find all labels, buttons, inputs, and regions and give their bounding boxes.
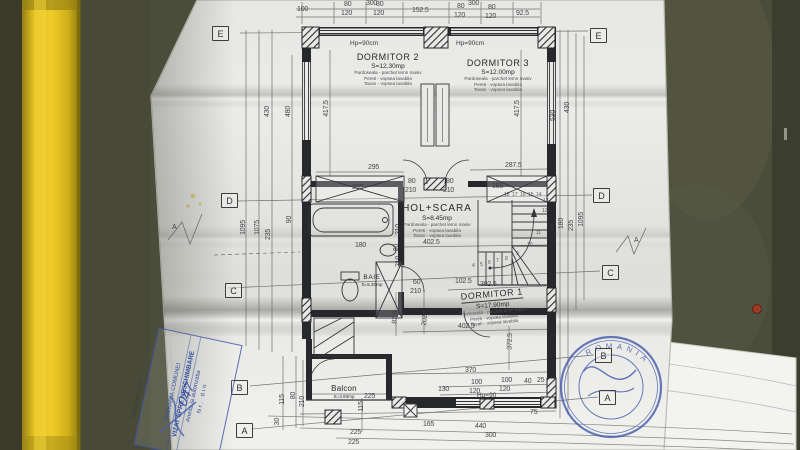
red-dot — [753, 305, 762, 314]
scene-graphics: ROMANIA — [0, 0, 800, 450]
yellow-frame-bar — [22, 0, 81, 450]
photo-stage: ROMANIA DORMITOR 2 S=12.30mp Pardoseala … — [0, 0, 800, 450]
wall-speck — [784, 128, 787, 140]
x-symbols — [404, 404, 417, 417]
